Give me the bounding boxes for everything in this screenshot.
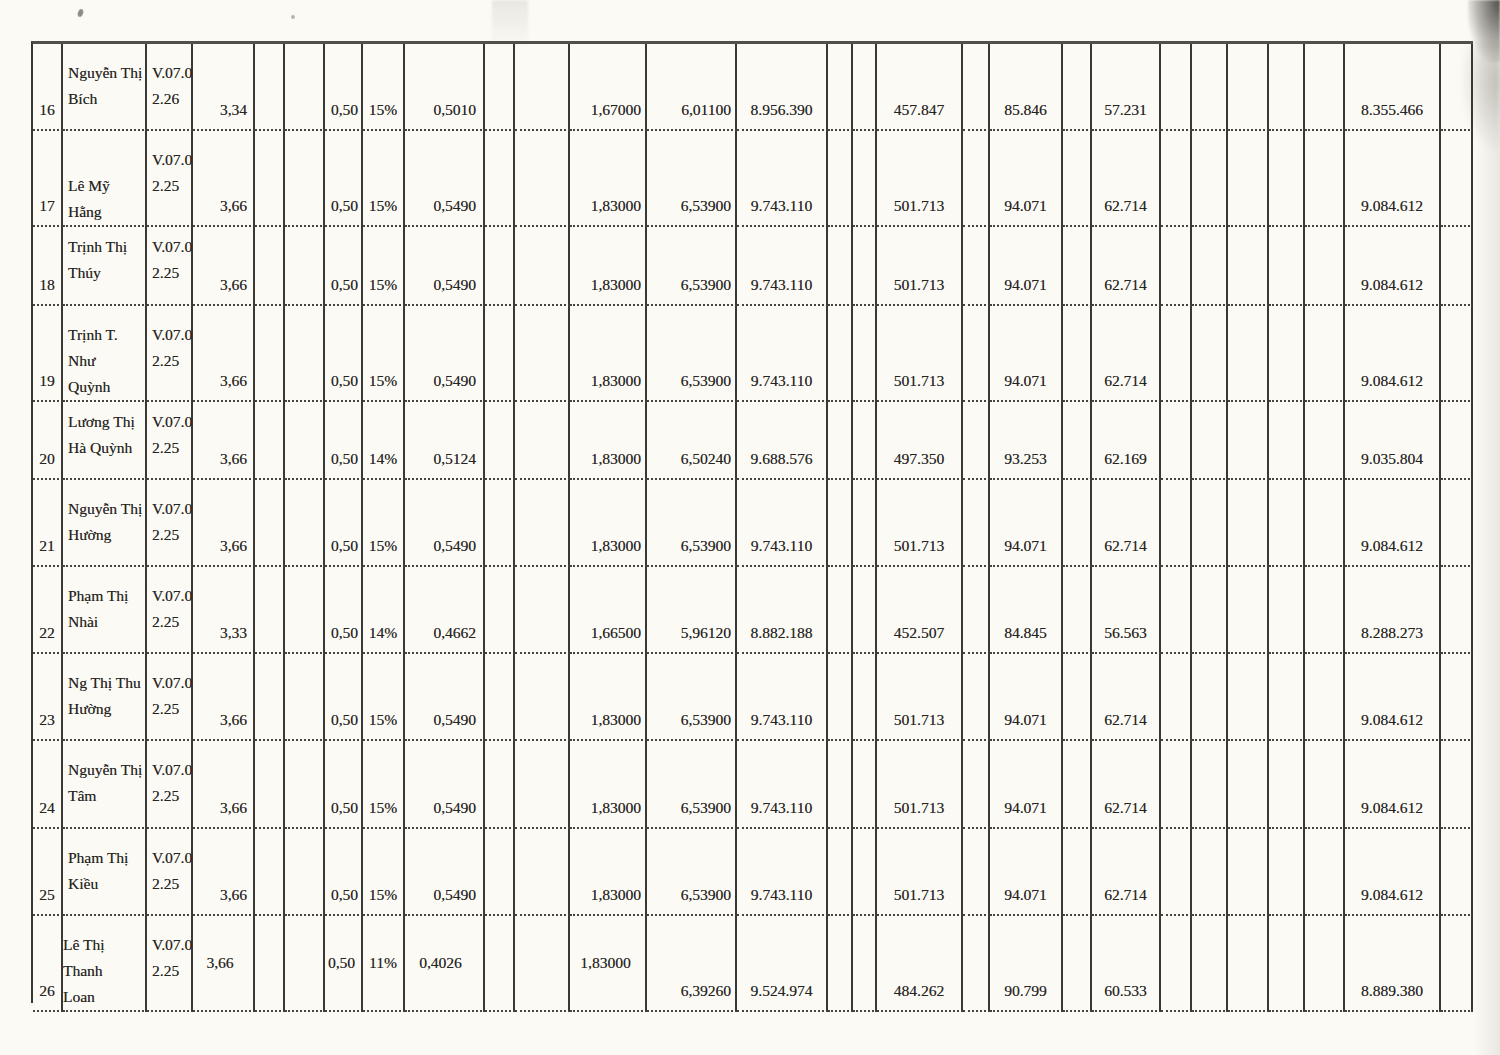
cell-empty — [1192, 218, 1228, 305]
allow-text: 0,50 — [331, 882, 358, 908]
no-text: 19 — [39, 368, 55, 394]
cell-empty — [1269, 480, 1305, 567]
scan-speck — [291, 15, 295, 19]
pct-text: 11% — [369, 950, 397, 976]
cell-empty — [1192, 131, 1228, 227]
cell-pct: 14% — [363, 567, 405, 654]
cell-code: V.07.0 2.25 — [147, 393, 193, 480]
cell-name: Phạm Thị Kiều — [63, 829, 147, 916]
coef_total-text: 6,39260 — [681, 978, 731, 1004]
cell-empty — [515, 393, 570, 480]
scan-edge-shade — [1474, 0, 1500, 1055]
cell-empty — [285, 44, 325, 131]
cell-pct_val: 0,5490 — [405, 218, 485, 305]
cell-no: 18 — [33, 218, 63, 305]
cell-empty — [828, 306, 853, 402]
name-text: Phạm Thị Nhài — [68, 583, 128, 635]
code-text: V.07.0 2.25 — [152, 322, 192, 374]
cell-net: 8.889.380 — [1345, 916, 1441, 1012]
cell-empty — [1269, 829, 1305, 916]
cell-coef: 3,66 — [193, 131, 255, 227]
cell-code: V.07.0 2.25 — [147, 567, 193, 654]
net-text: 9.084.612 — [1361, 707, 1423, 733]
cell-empty — [1305, 654, 1345, 741]
pct_val-text: 0,5490 — [433, 368, 476, 394]
cell-empty — [1063, 131, 1092, 227]
ded_bhyt-text: 94.071 — [1004, 368, 1047, 394]
allow-text: 0,50 — [331, 368, 358, 394]
cell-base: 1,66500 — [570, 567, 647, 654]
pct-text: 15% — [369, 795, 397, 821]
table-row: 16Nguyễn Thị BíchV.07.0 2.263,340,5015%0… — [33, 44, 1473, 131]
base-text: 1,83000 — [591, 533, 641, 559]
cell-no: 24 — [33, 741, 63, 828]
cell-empty — [828, 741, 853, 828]
cell-empty — [515, 829, 570, 916]
cell-no: 22 — [33, 567, 63, 654]
coef_total-text: 6,53900 — [681, 193, 731, 219]
cell-empty — [1192, 916, 1228, 1012]
coef_total-text: 6,53900 — [681, 272, 731, 298]
net-text: 9.084.612 — [1361, 272, 1423, 298]
cell-empty — [1161, 741, 1192, 828]
cell-empty — [1441, 393, 1473, 480]
pct_val-text: 0,5490 — [433, 533, 476, 559]
coef_total-text: 6,50240 — [681, 446, 731, 472]
cell-pct: 15% — [363, 306, 405, 402]
cell-coef_total: 6,53900 — [647, 654, 737, 741]
cell-ded_bhyt: 94.071 — [990, 654, 1063, 741]
cell-empty — [255, 218, 285, 305]
allow-text: 0,50 — [328, 950, 355, 976]
allow-text: 0,50 — [331, 193, 358, 219]
allow-text: 0,50 — [331, 97, 358, 123]
cell-ded_bhxh: 501.713 — [877, 218, 963, 305]
name-text: Nguyễn Thị Bích — [68, 60, 142, 112]
cell-coef: 3,66 — [193, 829, 255, 916]
cell-empty — [1063, 480, 1092, 567]
cell-ded_bhyt: 93.253 — [990, 393, 1063, 480]
pct_val-text: 0,5010 — [433, 97, 476, 123]
cell-ded_bhtn: 62.714 — [1092, 306, 1161, 402]
allow-text: 0,50 — [331, 272, 358, 298]
pct-text: 15% — [369, 193, 397, 219]
pct_val-text: 0,4662 — [433, 620, 476, 646]
ded_bhxh-text: 501.713 — [894, 272, 944, 298]
cell-name: Trịnh T. Như Quỳnh — [63, 306, 147, 402]
cell-empty — [255, 44, 285, 131]
cell-empty — [285, 131, 325, 227]
cell-empty — [853, 916, 877, 1012]
table-row: 23Ng Thị Thu HườngV.07.0 2.253,660,5015%… — [33, 654, 1473, 741]
cell-empty — [853, 393, 877, 480]
table-row: 22Phạm Thị NhàiV.07.0 2.253,330,5014%0,4… — [33, 567, 1473, 654]
cell-name: Trịnh Thị Thúy — [63, 218, 147, 305]
name-text: Lương Thị Hà Quỳnh — [68, 409, 135, 461]
cell-allow: 0,50 — [325, 44, 363, 131]
cell-empty — [1228, 567, 1269, 654]
cell-empty — [1192, 480, 1228, 567]
cell-coef: 3,66 — [193, 480, 255, 567]
ded_bhxh-text: 501.713 — [894, 533, 944, 559]
cell-ded_bhxh: 484.262 — [877, 916, 963, 1012]
base-text: 1,83000 — [591, 882, 641, 908]
net-text: 9.084.612 — [1361, 882, 1423, 908]
cell-coef_total: 6,50240 — [647, 393, 737, 480]
cell-empty — [1441, 218, 1473, 305]
coef_total-text: 6,53900 — [681, 533, 731, 559]
code-text: V.07.0 2.25 — [152, 583, 192, 635]
cell-salary: 9.743.110 — [737, 741, 828, 828]
cell-empty — [1269, 44, 1305, 131]
cell-empty — [285, 567, 325, 654]
cell-ded_bhtn: 60.533 — [1092, 916, 1161, 1012]
cell-name: Nguyễn Thị Hường — [63, 480, 147, 567]
cell-net: 9.084.612 — [1345, 741, 1441, 828]
table-row: 21Nguyễn Thị HườngV.07.0 2.253,660,5015%… — [33, 480, 1473, 567]
cell-empty — [1269, 567, 1305, 654]
code-text: V.07.0 2.25 — [152, 757, 192, 809]
base-text: 1,66500 — [591, 620, 641, 646]
cell-empty — [485, 480, 515, 567]
cell-empty — [853, 567, 877, 654]
cell-empty — [1305, 480, 1345, 567]
cell-allow: 0,50 — [325, 916, 363, 1012]
cell-coef_total: 6,53900 — [647, 218, 737, 305]
cell-empty — [1305, 306, 1345, 402]
cell-ded_bhxh: 501.713 — [877, 480, 963, 567]
cell-name: Lê Mỹ Hằng — [63, 131, 147, 227]
pct-text: 15% — [369, 882, 397, 908]
cell-ded_bhyt: 94.071 — [990, 131, 1063, 227]
cell-empty — [1228, 218, 1269, 305]
cell-ded_bhtn: 62.169 — [1092, 393, 1161, 480]
name-text: Trịnh T. Như Quỳnh — [68, 322, 145, 400]
cell-pct: 15% — [363, 741, 405, 828]
no-text: 18 — [39, 272, 55, 298]
salary-text: 9.743.110 — [751, 533, 812, 559]
cell-empty — [1192, 306, 1228, 402]
cell-empty — [1441, 654, 1473, 741]
cell-base: 1,83000 — [570, 131, 647, 227]
cell-salary: 9.743.110 — [737, 829, 828, 916]
cell-allow: 0,50 — [325, 829, 363, 916]
ded_bhxh-text: 501.713 — [894, 368, 944, 394]
cell-ded_bhtn: 62.714 — [1092, 480, 1161, 567]
cell-ded_bhxh: 452.507 — [877, 567, 963, 654]
cell-empty — [285, 916, 325, 1012]
cell-empty — [1441, 829, 1473, 916]
ded_bhxh-text: 497.350 — [894, 446, 944, 472]
coef_total-text: 6,53900 — [681, 882, 731, 908]
cell-ded_bhyt: 85.846 — [990, 44, 1063, 131]
cell-empty — [485, 916, 515, 1012]
cell-net: 9.084.612 — [1345, 829, 1441, 916]
cell-empty — [515, 916, 570, 1012]
coef_total-text: 6,53900 — [681, 795, 731, 821]
cell-empty — [255, 916, 285, 1012]
cell-net: 9.084.612 — [1345, 480, 1441, 567]
cell-empty — [1063, 829, 1092, 916]
cell-empty — [963, 916, 990, 1012]
base-text: 1,83000 — [591, 707, 641, 733]
cell-empty — [1269, 306, 1305, 402]
base-text: 1,67000 — [591, 97, 641, 123]
code-text: V.07.0 2.25 — [152, 932, 192, 984]
ded_bhtn-text: 60.533 — [1104, 978, 1147, 1004]
no-text: 23 — [39, 707, 55, 733]
cell-base: 1,83000 — [570, 829, 647, 916]
cell-empty — [1305, 44, 1345, 131]
cell-allow: 0,50 — [325, 393, 363, 480]
cell-salary: 8.882.188 — [737, 567, 828, 654]
cell-ded_bhtn: 62.714 — [1092, 741, 1161, 828]
ded_bhxh-text: 457.847 — [894, 97, 944, 123]
coef_total-text: 6,01100 — [681, 97, 731, 123]
cell-net: 9.084.612 — [1345, 306, 1441, 402]
cell-empty — [255, 654, 285, 741]
net-text: 8.355.466 — [1361, 97, 1423, 123]
ded_bhxh-text: 501.713 — [894, 193, 944, 219]
cell-coef_total: 5,96120 — [647, 567, 737, 654]
cell-no: 16 — [33, 44, 63, 131]
cell-ded_bhyt: 94.071 — [990, 829, 1063, 916]
cell-empty — [255, 480, 285, 567]
cell-code: V.07.0 2.25 — [147, 480, 193, 567]
cell-empty — [1161, 306, 1192, 402]
cell-ded_bhtn: 57.231 — [1092, 44, 1161, 131]
cell-empty — [485, 393, 515, 480]
cell-empty — [255, 741, 285, 828]
cell-empty — [1441, 44, 1473, 131]
cell-code: V.07.0 2.25 — [147, 306, 193, 402]
cell-net: 8.288.273 — [1345, 567, 1441, 654]
cell-pct: 15% — [363, 218, 405, 305]
cell-coef: 3,66 — [193, 916, 255, 1012]
cell-empty — [1228, 741, 1269, 828]
pct_val-text: 0,5490 — [433, 272, 476, 298]
cell-empty — [1269, 741, 1305, 828]
cell-name: Nguyễn Thị Bích — [63, 44, 147, 131]
cell-salary: 9.743.110 — [737, 218, 828, 305]
cell-empty — [1192, 829, 1228, 916]
cell-base: 1,83000 — [570, 480, 647, 567]
name-text: Lê Mỹ Hằng — [68, 147, 145, 225]
cell-empty — [1305, 916, 1345, 1012]
cell-coef_total: 6,53900 — [647, 480, 737, 567]
no-text: 26 — [39, 978, 55, 1004]
coef-text: 3,66 — [220, 368, 247, 394]
name-text: Trịnh Thị Thúy — [68, 234, 127, 286]
ded_bhtn-text: 62.714 — [1104, 193, 1147, 219]
cell-pct_val: 0,5490 — [405, 131, 485, 227]
cell-name: Phạm Thị Nhài — [63, 567, 147, 654]
cell-empty — [963, 654, 990, 741]
cell-empty — [255, 131, 285, 227]
cell-empty — [255, 306, 285, 402]
cell-net: 9.084.612 — [1345, 131, 1441, 227]
cell-empty — [853, 480, 877, 567]
salary-text: 9.743.110 — [751, 272, 812, 298]
table-row: 25Phạm Thị KiềuV.07.0 2.253,660,5015%0,5… — [33, 829, 1473, 916]
cell-empty — [1441, 131, 1473, 227]
cell-empty — [1228, 131, 1269, 227]
cell-empty — [1161, 829, 1192, 916]
pct_val-text: 0,5124 — [433, 446, 476, 472]
cell-coef: 3,66 — [193, 393, 255, 480]
coef-text: 3,66 — [220, 272, 247, 298]
cell-pct_val: 0,5490 — [405, 829, 485, 916]
cell-salary: 9.688.576 — [737, 393, 828, 480]
net-text: 9.035.804 — [1361, 446, 1423, 472]
cell-empty — [828, 44, 853, 131]
ded_bhyt-text: 94.071 — [1004, 707, 1047, 733]
cell-empty — [828, 393, 853, 480]
salary-text: 9.743.110 — [751, 795, 812, 821]
cell-empty — [1269, 131, 1305, 227]
cell-net: 9.084.612 — [1345, 654, 1441, 741]
cell-empty — [853, 741, 877, 828]
salary-text: 8.956.390 — [751, 97, 813, 123]
cell-salary: 9.743.110 — [737, 480, 828, 567]
base-text: 1,83000 — [591, 446, 641, 472]
ded_bhyt-text: 84.845 — [1004, 620, 1047, 646]
cell-empty — [485, 829, 515, 916]
cell-empty — [515, 218, 570, 305]
cell-empty — [1192, 741, 1228, 828]
cell-ded_bhxh: 501.713 — [877, 829, 963, 916]
cell-empty — [515, 741, 570, 828]
name-text: Lê Thị Thanh Loan — [63, 932, 145, 1010]
cell-empty — [485, 567, 515, 654]
cell-ded_bhtn: 62.714 — [1092, 131, 1161, 227]
pct_val-text: 0,5490 — [433, 882, 476, 908]
cell-no: 17 — [33, 131, 63, 227]
cell-code: V.07.0 2.25 — [147, 741, 193, 828]
cell-empty — [1305, 741, 1345, 828]
cell-empty — [515, 654, 570, 741]
no-text: 24 — [39, 795, 55, 821]
ded_bhyt-text: 90.799 — [1004, 978, 1047, 1004]
cell-empty — [1192, 44, 1228, 131]
cell-coef_total: 6,01100 — [647, 44, 737, 131]
cell-pct_val: 0,5124 — [405, 393, 485, 480]
salary-text: 9.524.974 — [751, 978, 813, 1004]
cell-ded_bhtn: 56.563 — [1092, 567, 1161, 654]
cell-empty — [963, 131, 990, 227]
coef-text: 3,66 — [220, 707, 247, 733]
cell-empty — [1192, 567, 1228, 654]
pct_val-text: 0,5490 — [433, 795, 476, 821]
coef-text: 3,66 — [220, 446, 247, 472]
ded_bhyt-text: 94.071 — [1004, 193, 1047, 219]
allow-text: 0,50 — [331, 707, 358, 733]
cell-coef_total: 6,53900 — [647, 131, 737, 227]
ded_bhxh-text: 501.713 — [894, 707, 944, 733]
code-text: V.07.0 2.25 — [152, 147, 192, 199]
code-text: V.07.0 2.26 — [152, 60, 192, 112]
ded_bhtn-text: 62.714 — [1104, 795, 1147, 821]
cell-ded_bhxh: 457.847 — [877, 44, 963, 131]
cell-empty — [485, 44, 515, 131]
coef-text: 3,66 — [220, 193, 247, 219]
pct_val-text: 0,5490 — [433, 193, 476, 219]
cell-pct_val: 0,4662 — [405, 567, 485, 654]
cell-empty — [285, 306, 325, 402]
ded_bhtn-text: 62.714 — [1104, 533, 1147, 559]
cell-empty — [485, 654, 515, 741]
net-text: 9.084.612 — [1361, 193, 1423, 219]
cell-empty — [1228, 480, 1269, 567]
cell-ded_bhtn: 62.714 — [1092, 654, 1161, 741]
cell-empty — [1441, 480, 1473, 567]
table-row: 17 Lê Mỹ HằngV.07.0 2.253,660,5015%0,549… — [33, 131, 1473, 218]
cell-allow: 0,50 — [325, 306, 363, 402]
cell-empty — [285, 393, 325, 480]
cell-empty — [1161, 393, 1192, 480]
salary-text: 9.688.576 — [751, 446, 813, 472]
cell-empty — [1161, 44, 1192, 131]
cell-code: V.07.0 2.25 — [147, 218, 193, 305]
cell-name: Lê Thị Thanh Loan — [63, 916, 147, 1012]
ded_bhtn-text: 62.714 — [1104, 272, 1147, 298]
cell-empty — [515, 306, 570, 402]
cell-empty — [1063, 218, 1092, 305]
code-text: V.07.0 2.25 — [152, 496, 192, 548]
pct-text: 14% — [369, 446, 397, 472]
cell-empty — [1063, 567, 1092, 654]
cell-coef: 3,66 — [193, 306, 255, 402]
cell-pct: 15% — [363, 131, 405, 227]
cell-no: 26 — [33, 916, 63, 1012]
code-text: V.07.0 2.25 — [152, 409, 192, 461]
cell-empty — [1441, 567, 1473, 654]
cell-empty — [1161, 131, 1192, 227]
name-text: Phạm Thị Kiều — [68, 845, 128, 897]
cell-empty — [485, 741, 515, 828]
cell-empty — [1305, 567, 1345, 654]
cell-allow: 0,50 — [325, 131, 363, 227]
cell-ded_bhyt: 90.799 — [990, 916, 1063, 1012]
cell-empty — [1063, 654, 1092, 741]
cell-coef: 3,66 — [193, 654, 255, 741]
cell-empty — [1063, 916, 1092, 1012]
cell-empty — [963, 393, 990, 480]
cell-pct_val: 0,5490 — [405, 480, 485, 567]
base-text: 1,83000 — [591, 795, 641, 821]
cell-empty — [1305, 218, 1345, 305]
cell-empty — [1161, 480, 1192, 567]
cell-empty — [485, 131, 515, 227]
salary-table: 16Nguyễn Thị BíchV.07.0 2.263,340,5015%0… — [31, 41, 1473, 1003]
cell-empty — [1441, 741, 1473, 828]
allow-text: 0,50 — [331, 446, 358, 472]
cell-salary: 9.743.110 — [737, 654, 828, 741]
cell-pct_val: 0,5010 — [405, 44, 485, 131]
cell-allow: 0,50 — [325, 480, 363, 567]
cell-empty — [1063, 393, 1092, 480]
name-text: Nguyễn Thị Tâm — [68, 757, 142, 809]
no-text: 20 — [39, 446, 55, 472]
cell-empty — [1269, 218, 1305, 305]
net-text: 9.084.612 — [1361, 795, 1423, 821]
cell-net: 8.355.466 — [1345, 44, 1441, 131]
no-text: 25 — [39, 882, 55, 908]
table-row: 18Trịnh Thị ThúyV.07.0 2.253,660,5015%0,… — [33, 218, 1473, 305]
cell-base: 1,83000 — [570, 393, 647, 480]
cell-empty — [255, 829, 285, 916]
cell-empty — [1441, 306, 1473, 402]
